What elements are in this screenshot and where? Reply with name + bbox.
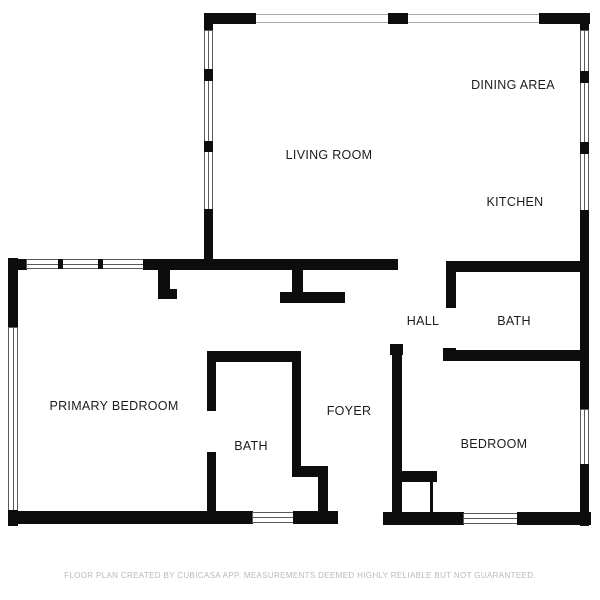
- wall-segment: [204, 209, 213, 263]
- wall-segment: [580, 13, 589, 31]
- wall-segment: [517, 512, 591, 525]
- wall-segment: [143, 259, 398, 270]
- wall-segment: [388, 13, 408, 24]
- wall-segment: [318, 466, 328, 516]
- disclaimer-text: FLOOR PLAN CREATED BY CUBICASA APP. MEAS…: [0, 571, 600, 580]
- window: [580, 409, 589, 466]
- wall-segment: [446, 261, 580, 272]
- room-label-bedroom: BEDROOM: [461, 437, 528, 451]
- wall-segment: [580, 142, 589, 154]
- wall-segment: [293, 511, 338, 524]
- wall-segment: [446, 261, 456, 308]
- window: [252, 512, 294, 523]
- wall-segment: [204, 141, 213, 152]
- window: [463, 513, 518, 524]
- closet-door-line: [430, 479, 433, 516]
- window: [204, 30, 213, 211]
- room-label-living-room: LIVING ROOM: [286, 148, 373, 162]
- wall-segment: [207, 351, 216, 411]
- wall-segment: [207, 351, 301, 362]
- wall-segment: [580, 210, 589, 411]
- window-mullion: [58, 259, 63, 269]
- room-label-foyer: FOYER: [327, 404, 372, 418]
- room-label-hall: HALL: [407, 314, 439, 328]
- wall-segment: [8, 511, 253, 524]
- room-label-bath-center: BATH: [234, 439, 268, 453]
- wall-segment: [443, 350, 580, 361]
- window: [8, 327, 18, 511]
- room-label-dining-area: DINING AREA: [471, 78, 555, 92]
- wall-segment: [204, 13, 213, 31]
- wall-segment: [207, 452, 216, 513]
- window: [26, 259, 144, 269]
- wall-segment: [8, 259, 27, 270]
- wall-segment: [292, 351, 301, 468]
- wall-segment: [158, 289, 177, 299]
- wall-segment: [580, 71, 589, 83]
- wall-segment: [392, 344, 402, 516]
- room-label-primary-bedroom: PRIMARY BEDROOM: [49, 399, 178, 413]
- room-label-kitchen: KITCHEN: [487, 195, 544, 209]
- floor-plan: LIVING ROOM DINING AREA KITCHEN HALL BAT…: [0, 0, 600, 600]
- window-mullion: [98, 259, 103, 269]
- room-label-bath-right: BATH: [497, 314, 531, 328]
- wall-segment: [204, 69, 213, 81]
- window: [580, 30, 589, 211]
- wall-segment: [280, 292, 345, 303]
